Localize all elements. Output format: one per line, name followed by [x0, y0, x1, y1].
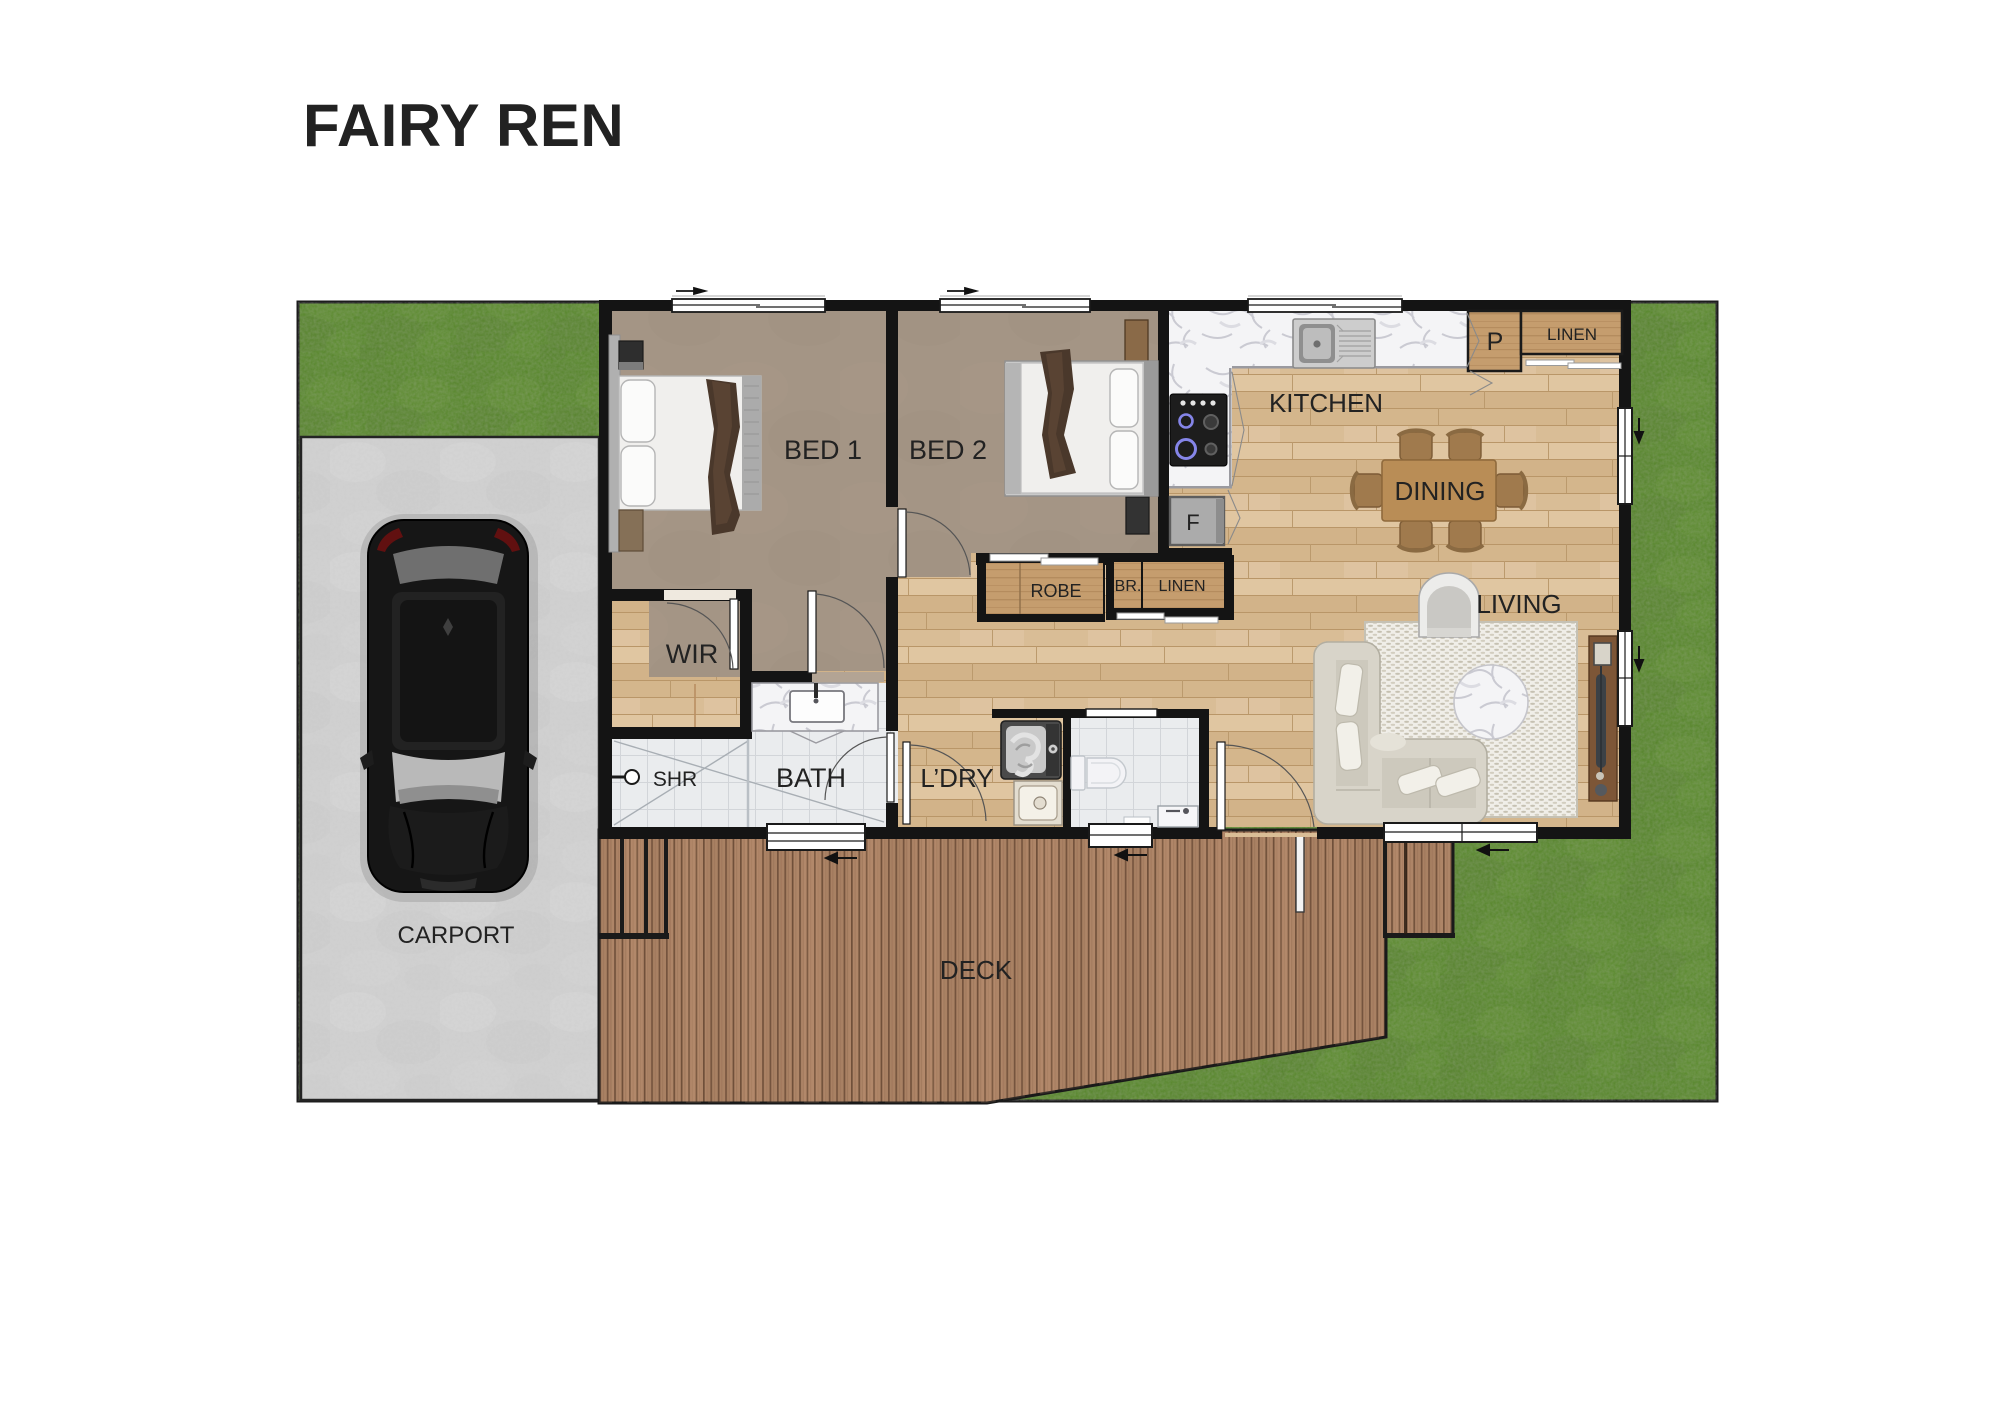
svg-text:BR.: BR.	[1115, 578, 1142, 595]
svg-text:ROBE: ROBE	[1030, 581, 1081, 601]
svg-text:LIVING: LIVING	[1476, 589, 1561, 619]
svg-text:DINING: DINING	[1395, 476, 1486, 506]
svg-text:BATH: BATH	[776, 763, 846, 793]
svg-text:KITCHEN: KITCHEN	[1269, 388, 1383, 418]
svg-text:FAIRY REN: FAIRY REN	[303, 92, 624, 159]
svg-text:LINEN: LINEN	[1547, 325, 1597, 344]
svg-text:L’DRY: L’DRY	[920, 763, 993, 793]
svg-text:WIR: WIR	[666, 639, 718, 669]
svg-text:SHR: SHR	[653, 768, 697, 791]
svg-text:BED 2: BED 2	[909, 435, 987, 465]
svg-text:BED 1: BED 1	[784, 435, 862, 465]
svg-text:CARPORT: CARPORT	[398, 922, 515, 949]
svg-text:F: F	[1186, 510, 1199, 535]
svg-text:DECK: DECK	[940, 955, 1013, 985]
svg-text:LINEN: LINEN	[1158, 578, 1205, 595]
svg-text:P: P	[1487, 328, 1504, 356]
